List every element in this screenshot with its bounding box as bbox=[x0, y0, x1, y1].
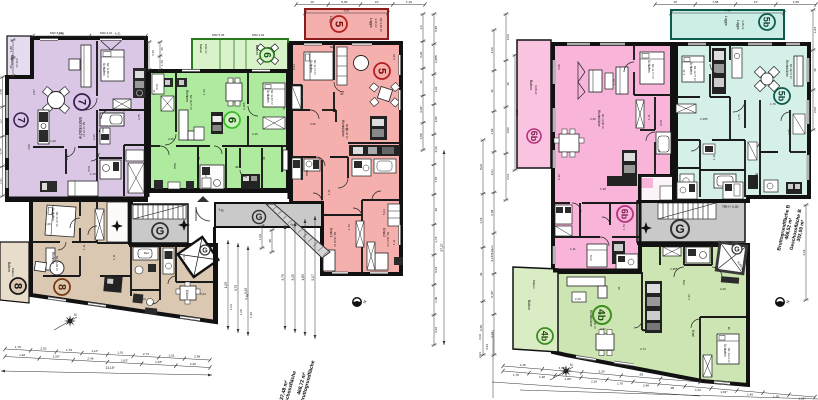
svg-text:2,01: 2,01 bbox=[478, 352, 482, 358]
svg-text:1,11: 1,11 bbox=[327, 189, 331, 195]
svg-text:1,76: 1,76 bbox=[15, 345, 21, 349]
svg-text:1,63: 1,63 bbox=[813, 27, 817, 33]
svg-text:46: 46 bbox=[434, 208, 438, 212]
svg-text:4,97: 4,97 bbox=[343, 8, 349, 12]
svg-text:1,01: 1,01 bbox=[229, 304, 233, 310]
svg-text:2,26: 2,26 bbox=[145, 53, 149, 59]
svg-text:3,23: 3,23 bbox=[485, 344, 489, 350]
svg-text:46: 46 bbox=[479, 272, 483, 276]
svg-text:6b: 6b bbox=[620, 209, 630, 220]
svg-text:Kind: Kind bbox=[155, 84, 159, 90]
svg-text:1,31: 1,31 bbox=[657, 149, 661, 155]
svg-text:6,34: 6,34 bbox=[0, 148, 2, 154]
svg-text:Wohnküche: Wohnküche bbox=[785, 60, 789, 77]
svg-text:6,08 m²: 6,08 m² bbox=[534, 85, 538, 95]
svg-text:1,76: 1,76 bbox=[90, 172, 96, 176]
svg-text:Balkon: Balkon bbox=[532, 280, 536, 289]
svg-text:40: 40 bbox=[755, 172, 759, 176]
svg-text:3,75: 3,75 bbox=[281, 274, 285, 280]
svg-text:3,50: 3,50 bbox=[434, 116, 438, 122]
svg-text:NF 14,27 m²: NF 14,27 m² bbox=[55, 212, 59, 227]
svg-text:2,385: 2,385 bbox=[434, 55, 438, 63]
svg-text:5,02: 5,02 bbox=[479, 164, 483, 170]
svg-text:2,57: 2,57 bbox=[600, 327, 606, 331]
svg-text:5b: 5b bbox=[777, 91, 787, 102]
svg-text:9,18 Balkon: 9,18 Balkon bbox=[490, 245, 494, 262]
svg-text:1,76: 1,76 bbox=[622, 224, 626, 230]
svg-text:Bad: Bad bbox=[330, 45, 335, 49]
svg-text:G: G bbox=[156, 226, 165, 238]
svg-text:5b: 5b bbox=[762, 17, 772, 28]
svg-text:MW 5,36: MW 5,36 bbox=[212, 33, 225, 37]
svg-text:Loggia: Loggia bbox=[369, 18, 373, 28]
svg-text:3,75: 3,75 bbox=[234, 285, 238, 291]
svg-text:2,06: 2,06 bbox=[813, 107, 817, 113]
svg-text:NF 21,26 m²: NF 21,26 m² bbox=[345, 124, 349, 139]
svg-text:2,48: 2,48 bbox=[479, 325, 483, 331]
svg-text:1,01: 1,01 bbox=[117, 351, 123, 355]
svg-text:2,74: 2,74 bbox=[143, 352, 149, 356]
svg-text:Balkon: Balkon bbox=[11, 268, 15, 277]
svg-text:1,83: 1,83 bbox=[301, 274, 305, 280]
svg-text:NF 43,06 m²: NF 43,06 m² bbox=[601, 114, 605, 129]
svg-text:Schlafen: Schlafen bbox=[723, 344, 727, 357]
svg-text:1,19: 1,19 bbox=[406, 0, 412, 4]
svg-text:5,32: 5,32 bbox=[515, 109, 519, 115]
svg-text:6: 6 bbox=[261, 52, 272, 58]
svg-text:8: 8 bbox=[56, 284, 68, 290]
svg-text:4b: 4b bbox=[540, 331, 550, 342]
svg-text:3,46: 3,46 bbox=[58, 31, 64, 35]
svg-text:2,26: 2,26 bbox=[92, 134, 96, 140]
svg-text:1,76: 1,76 bbox=[617, 382, 623, 386]
svg-text:1,11: 1,11 bbox=[112, 254, 116, 260]
svg-text:1,76: 1,76 bbox=[160, 60, 164, 66]
svg-text:G: G bbox=[675, 222, 684, 236]
svg-text:2,02: 2,02 bbox=[802, 249, 806, 255]
svg-text:3,45: 3,45 bbox=[291, 274, 295, 280]
svg-text:3,75: 3,75 bbox=[137, 114, 141, 120]
svg-text:MW 4,21: MW 4,21 bbox=[100, 31, 113, 35]
svg-text:1,11: 1,11 bbox=[82, 244, 86, 250]
svg-text:2,26: 2,26 bbox=[140, 297, 146, 301]
svg-text:40: 40 bbox=[340, 92, 344, 96]
svg-text:2,46: 2,46 bbox=[65, 154, 69, 160]
svg-text:3,85: 3,85 bbox=[0, 89, 2, 95]
svg-text:1,38: 1,38 bbox=[434, 297, 438, 303]
svg-text:2,50*: 2,50* bbox=[53, 355, 61, 359]
svg-text:Loggia: Loggia bbox=[736, 20, 740, 30]
svg-text:1,62: 1,62 bbox=[687, 294, 691, 300]
svg-text:1,48: 1,48 bbox=[539, 375, 545, 379]
svg-text:1,11: 1,11 bbox=[712, 154, 716, 160]
svg-text:Kind: Kind bbox=[659, 120, 663, 126]
svg-text:2,02: 2,02 bbox=[478, 334, 482, 340]
svg-text:7,48: 7,48 bbox=[724, 8, 730, 12]
svg-text:1,76: 1,76 bbox=[770, 102, 776, 106]
svg-text:2,385: 2,385 bbox=[242, 102, 246, 110]
svg-text:Balkon: Balkon bbox=[527, 300, 531, 310]
svg-text:4,10 m²: 4,10 m² bbox=[374, 18, 378, 28]
svg-text:Kind: Kind bbox=[691, 330, 695, 337]
svg-text:5,32*: 5,32* bbox=[490, 290, 494, 298]
svg-text:NF 11,85 m²: NF 11,85 m² bbox=[106, 63, 110, 78]
svg-text:6b: 6b bbox=[529, 131, 539, 142]
svg-text:2,06: 2,06 bbox=[490, 47, 494, 53]
svg-text:NF 11,77 m²: NF 11,77 m² bbox=[651, 64, 655, 79]
svg-text:G: G bbox=[255, 212, 262, 222]
svg-text:1,43: 1,43 bbox=[202, 89, 206, 95]
svg-text:Wohnen: Wohnen bbox=[51, 252, 55, 264]
svg-text:1,76: 1,76 bbox=[66, 348, 72, 352]
svg-text:10: 10 bbox=[375, 0, 379, 4]
svg-text:10: 10 bbox=[310, 0, 314, 4]
svg-text:1,09: 1,09 bbox=[258, 234, 262, 240]
svg-text:,99: ,99 bbox=[639, 373, 644, 377]
svg-text:1,88: 1,88 bbox=[419, 133, 423, 139]
svg-text:2,385: 2,385 bbox=[670, 267, 678, 271]
svg-text:9,92 m²: 9,92 m² bbox=[204, 44, 208, 54]
svg-text:1,76: 1,76 bbox=[434, 236, 438, 242]
svg-text:1,43*: 1,43* bbox=[155, 360, 163, 364]
svg-text:1,11*: 1,11* bbox=[91, 349, 99, 353]
svg-text:3,75: 3,75 bbox=[737, 114, 741, 120]
svg-text:2,46: 2,46 bbox=[787, 129, 791, 135]
svg-text:3,32*: 3,32* bbox=[419, 105, 423, 113]
svg-text:Bad: Bad bbox=[101, 128, 105, 133]
svg-text:5: 5 bbox=[376, 68, 388, 74]
svg-text:40: 40 bbox=[506, 82, 510, 86]
svg-text:1,09: 1,09 bbox=[50, 139, 56, 143]
svg-text:7: 7 bbox=[76, 99, 88, 105]
svg-text:2,74: 2,74 bbox=[640, 347, 646, 351]
svg-text:1,01: 1,01 bbox=[677, 376, 683, 380]
svg-text:2,01: 2,01 bbox=[490, 169, 494, 175]
svg-text:Wohnküche: Wohnküche bbox=[597, 110, 601, 127]
svg-text:2,06: 2,06 bbox=[506, 34, 510, 40]
svg-text:3,52: 3,52 bbox=[506, 127, 510, 133]
svg-text:2,46: 2,46 bbox=[87, 356, 93, 360]
svg-text:NF 10,11 m²: NF 10,11 m² bbox=[386, 232, 390, 247]
svg-text:13,13*: 13,13* bbox=[105, 366, 115, 370]
svg-text:40: 40 bbox=[490, 89, 494, 93]
svg-text:Schlafen: Schlafen bbox=[102, 63, 106, 76]
svg-text:6: 6 bbox=[226, 117, 238, 123]
svg-text:7,87: 7,87 bbox=[434, 176, 438, 182]
svg-text:2,26: 2,26 bbox=[310, 122, 316, 126]
svg-text:5,93: 5,93 bbox=[341, 0, 347, 4]
svg-text:40: 40 bbox=[419, 80, 423, 84]
svg-text:1,48: 1,48 bbox=[19, 353, 25, 357]
svg-text:1,81*: 1,81* bbox=[720, 390, 728, 394]
svg-text:Schlafen: Schlafen bbox=[266, 90, 270, 103]
svg-text:2,26: 2,26 bbox=[182, 254, 186, 260]
svg-text:1,01: 1,01 bbox=[434, 86, 438, 92]
svg-text:NF 17,37 m²: NF 17,37 m² bbox=[82, 122, 86, 137]
svg-text:2,48: 2,48 bbox=[490, 210, 494, 216]
svg-text:5,24: 5,24 bbox=[434, 266, 438, 272]
svg-text:2,46: 2,46 bbox=[392, 54, 396, 60]
svg-text:10: 10 bbox=[673, 0, 677, 4]
svg-text:NF 16,83 m²: NF 16,83 m² bbox=[55, 256, 59, 271]
svg-text:TRH + 0,00: TRH + 0,00 bbox=[722, 205, 739, 209]
svg-text:Schlafen: Schlafen bbox=[309, 60, 313, 73]
svg-text:2,26: 2,26 bbox=[168, 137, 174, 141]
svg-text:4,48 m²: 4,48 m² bbox=[741, 20, 745, 30]
svg-text:1,62: 1,62 bbox=[249, 312, 253, 318]
svg-text:1,49: 1,49 bbox=[747, 392, 753, 396]
svg-text:Kind 1: Kind 1 bbox=[329, 228, 333, 237]
svg-text:1,76: 1,76 bbox=[513, 373, 519, 377]
svg-text:2,29: 2,29 bbox=[591, 379, 597, 383]
svg-text:4,76: 4,76 bbox=[151, 50, 155, 56]
svg-text:3,32: 3,32 bbox=[434, 327, 438, 333]
svg-text:2,48: 2,48 bbox=[643, 384, 649, 388]
svg-text:2,06: 2,06 bbox=[419, 52, 423, 58]
svg-text:1,11: 1,11 bbox=[392, 239, 396, 245]
svg-text:2,29: 2,29 bbox=[598, 369, 604, 373]
svg-text:2,01: 2,01 bbox=[506, 173, 510, 179]
svg-text:40: 40 bbox=[9, 65, 13, 69]
svg-text:1,88: 1,88 bbox=[9, 46, 13, 52]
svg-text:8: 8 bbox=[12, 283, 24, 289]
svg-text:1,76: 1,76 bbox=[347, 224, 351, 230]
svg-text:2,46: 2,46 bbox=[720, 287, 726, 291]
svg-text:57,27: 57,27 bbox=[440, 243, 444, 251]
svg-text:1,52: 1,52 bbox=[490, 128, 494, 134]
svg-text:Kind: Kind bbox=[87, 166, 91, 172]
svg-text:Kind: Kind bbox=[589, 255, 593, 261]
svg-text:Balkon: Balkon bbox=[255, 45, 259, 55]
svg-text:Schlafen: Schlafen bbox=[51, 208, 55, 221]
svg-text:1,0: 1,0 bbox=[0, 119, 2, 124]
svg-text:5,24: 5,24 bbox=[200, 292, 206, 296]
svg-text:5: 5 bbox=[333, 21, 345, 27]
svg-text:40: 40 bbox=[262, 156, 266, 160]
svg-text:NF 39,74 m²: NF 39,74 m² bbox=[789, 64, 793, 79]
svg-text:Balkon: Balkon bbox=[529, 80, 533, 90]
svg-text:5,24: 5,24 bbox=[292, 64, 296, 70]
svg-text:3,50: 3,50 bbox=[557, 64, 561, 70]
svg-text:1,38: 1,38 bbox=[600, 187, 606, 191]
svg-text:7,68: 7,68 bbox=[712, 0, 718, 4]
svg-text:3,45: 3,45 bbox=[244, 288, 248, 294]
svg-text:Loggia: Loggia bbox=[724, 16, 728, 26]
svg-text:2,26: 2,26 bbox=[575, 297, 581, 301]
svg-text:48: 48 bbox=[268, 239, 272, 243]
svg-text:G: G bbox=[202, 248, 208, 255]
svg-text:48: 48 bbox=[235, 165, 239, 169]
svg-text:NF 10,23 m²: NF 10,23 m² bbox=[333, 232, 337, 247]
svg-text:Diele: Diele bbox=[305, 170, 309, 177]
svg-text:1,09*: 1,09* bbox=[564, 377, 572, 381]
svg-text:Bad: Bad bbox=[144, 251, 149, 255]
svg-text:10: 10 bbox=[754, 0, 758, 4]
svg-text:2,58: 2,58 bbox=[194, 355, 200, 359]
svg-text:Küche: Küche bbox=[185, 290, 189, 299]
svg-text:2,385: 2,385 bbox=[700, 117, 708, 121]
svg-text:Bad: Bad bbox=[682, 280, 686, 285]
svg-text:Bad: Bad bbox=[204, 172, 208, 177]
svg-text:3,50: 3,50 bbox=[27, 144, 31, 150]
svg-text:2,26: 2,26 bbox=[45, 222, 51, 226]
svg-text:Balkon: Balkon bbox=[7, 262, 11, 272]
svg-text:4b: 4b bbox=[595, 309, 606, 321]
svg-text:,99: ,99 bbox=[670, 386, 675, 390]
svg-text:Schlafen: Schlafen bbox=[689, 62, 693, 75]
svg-text:2,92: 2,92 bbox=[40, 346, 46, 350]
svg-text:1,09: 1,09 bbox=[147, 264, 151, 270]
svg-text:5,17: 5,17 bbox=[311, 274, 315, 280]
svg-text:7: 7 bbox=[15, 117, 26, 123]
svg-text:NF 18,27 m²: NF 18,27 m² bbox=[189, 95, 193, 110]
svg-text:1,45: 1,45 bbox=[520, 363, 526, 367]
svg-text:1,76: 1,76 bbox=[479, 217, 483, 223]
svg-text:3,38: 3,38 bbox=[434, 26, 438, 32]
svg-text:48: 48 bbox=[727, 326, 731, 330]
svg-text:G: G bbox=[734, 247, 740, 254]
svg-text:4,21: 4,21 bbox=[115, 31, 121, 35]
svg-text:48: 48 bbox=[197, 156, 201, 160]
svg-text:Balkon: Balkon bbox=[10, 55, 14, 65]
svg-text:Wohnen: Wohnen bbox=[185, 90, 189, 102]
svg-text:Kind 2: Kind 2 bbox=[382, 228, 386, 237]
svg-text:2,26: 2,26 bbox=[252, 132, 258, 136]
svg-text:MW 4,01: MW 4,01 bbox=[252, 33, 265, 37]
svg-text:40: 40 bbox=[160, 47, 164, 51]
svg-text:NF 13,77 m²: NF 13,77 m² bbox=[693, 66, 697, 81]
svg-text:1,00: 1,00 bbox=[239, 309, 243, 315]
svg-text:2,46: 2,46 bbox=[557, 174, 561, 180]
svg-text:1,62*: 1,62* bbox=[121, 358, 129, 362]
svg-text:36: 36 bbox=[617, 286, 621, 290]
svg-text:5,24: 5,24 bbox=[382, 209, 386, 215]
svg-text:2,46: 2,46 bbox=[590, 117, 596, 121]
svg-text:1,01: 1,01 bbox=[695, 388, 701, 392]
svg-text:40: 40 bbox=[122, 108, 126, 112]
svg-text:1,76: 1,76 bbox=[612, 79, 616, 85]
svg-text:40: 40 bbox=[282, 106, 286, 110]
svg-text:40: 40 bbox=[813, 68, 817, 72]
svg-text:1,51: 1,51 bbox=[0, 178, 2, 184]
svg-text:NF 13,11 m²: NF 13,11 m² bbox=[727, 348, 731, 363]
svg-text:1,0: 1,0 bbox=[419, 25, 423, 30]
svg-text:2,46: 2,46 bbox=[190, 362, 196, 366]
svg-text:Schlafen: Schlafen bbox=[647, 60, 651, 73]
svg-text:1,01: 1,01 bbox=[169, 353, 175, 357]
svg-text:1,11: 1,11 bbox=[152, 89, 156, 95]
svg-text:Diele: Diele bbox=[173, 163, 177, 170]
svg-text:1,69: 1,69 bbox=[793, 0, 799, 4]
svg-text:1,11: 1,11 bbox=[682, 69, 686, 75]
svg-text:4,34 m²: 4,34 m² bbox=[15, 58, 19, 68]
svg-text:Balkon: Balkon bbox=[199, 44, 203, 54]
svg-text:NF 3,97 m²: NF 3,97 m² bbox=[379, 18, 383, 32]
svg-text:NF 11,87 m²: NF 11,87 m² bbox=[270, 90, 274, 105]
svg-text:1,05: 1,05 bbox=[224, 282, 228, 288]
svg-text:NF 11,71 m²: NF 11,71 m² bbox=[313, 60, 317, 75]
svg-text:2,57: 2,57 bbox=[32, 89, 36, 95]
svg-text:1,11: 1,11 bbox=[570, 247, 576, 251]
svg-text:1,11: 1,11 bbox=[647, 114, 651, 120]
svg-text:2,26: 2,26 bbox=[434, 146, 438, 152]
